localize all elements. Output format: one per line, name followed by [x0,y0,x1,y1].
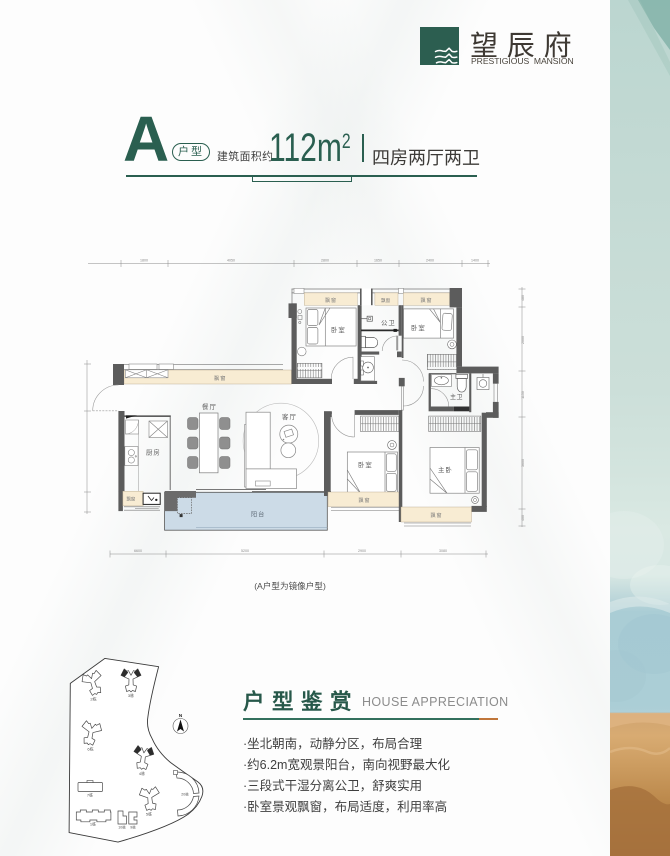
svg-text:卧室: 卧室 [358,460,373,469]
svg-text:卧室: 卧室 [411,323,426,332]
svg-text:3栋: 3栋 [128,692,134,698]
svg-text:飘窗: 飘窗 [127,496,136,503]
svg-text:1400: 1400 [471,259,479,263]
svg-text:飘窗: 飘窗 [421,297,433,304]
svg-text:4050: 4050 [227,259,235,263]
svg-text:N: N [179,713,182,718]
svg-text:客厅: 客厅 [282,412,297,421]
svg-text:2800: 2800 [321,259,329,263]
svg-text:卧室: 卧室 [331,325,346,334]
svg-text:6栋: 6栋 [87,746,93,752]
svg-text:主卧: 主卧 [438,465,453,474]
svg-text:3080: 3080 [439,549,447,553]
svg-text:飘窗: 飘窗 [325,297,337,304]
svg-text:9栋: 9栋 [130,825,136,830]
svg-text:阳台: 阳台 [251,511,265,519]
svg-text:5栋: 5栋 [146,811,152,817]
svg-text:7栋: 7栋 [87,792,93,798]
svg-text:10栋: 10栋 [118,825,126,830]
svg-text:飘窗: 飘窗 [431,512,443,519]
svg-text:1800: 1800 [140,259,148,263]
svg-text:2400: 2400 [426,259,434,263]
svg-text:1栋: 1栋 [90,821,96,827]
svg-text:20栋: 20栋 [181,792,189,797]
svg-text:飘窗: 飘窗 [214,374,226,382]
svg-text:飘窗: 飘窗 [359,497,371,504]
svg-text:2栋: 2栋 [90,696,96,702]
svg-text:400: 400 [521,515,525,521]
svg-text:1150: 1150 [521,391,525,399]
svg-text:5200: 5200 [241,549,249,553]
svg-text:2900: 2900 [358,549,366,553]
svg-text:厨房: 厨房 [146,448,161,457]
svg-text:6600: 6600 [134,549,142,553]
svg-text:公卫: 公卫 [381,319,396,327]
svg-text:3600: 3600 [521,459,525,467]
svg-text:飘窗: 飘窗 [381,297,391,304]
svg-text:480: 480 [521,295,525,301]
svg-text:主卫: 主卫 [450,393,463,401]
svg-text:4栋: 4栋 [139,770,145,776]
svg-text:2000: 2000 [521,336,525,344]
svg-text:餐厅: 餐厅 [202,402,217,411]
svg-text:1650: 1650 [374,259,382,263]
